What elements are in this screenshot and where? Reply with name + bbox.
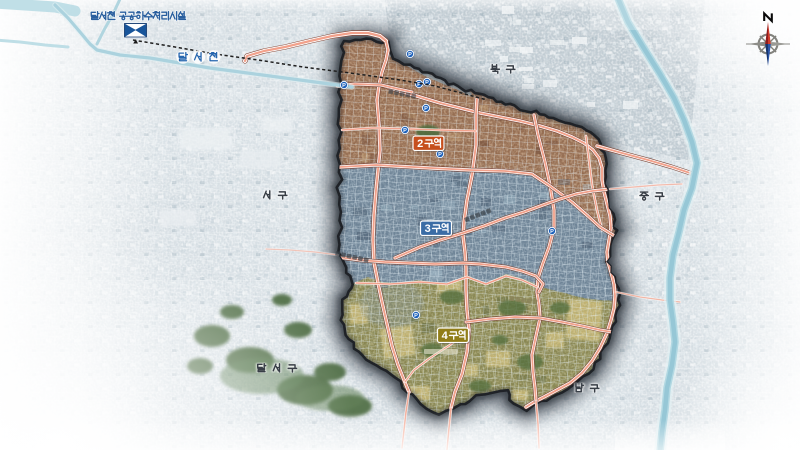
svg-text:P: P <box>414 313 418 319</box>
svg-text:P: P <box>550 229 554 235</box>
svg-text:2: 2 <box>417 138 423 150</box>
svg-text:3: 3 <box>425 223 431 235</box>
svg-text:4: 4 <box>442 330 449 342</box>
svg-text:P: P <box>408 52 412 58</box>
svg-text:P: P <box>438 152 442 158</box>
svg-text:P: P <box>342 83 346 89</box>
svg-text:P: P <box>403 128 407 134</box>
svg-text:P: P <box>424 106 428 112</box>
